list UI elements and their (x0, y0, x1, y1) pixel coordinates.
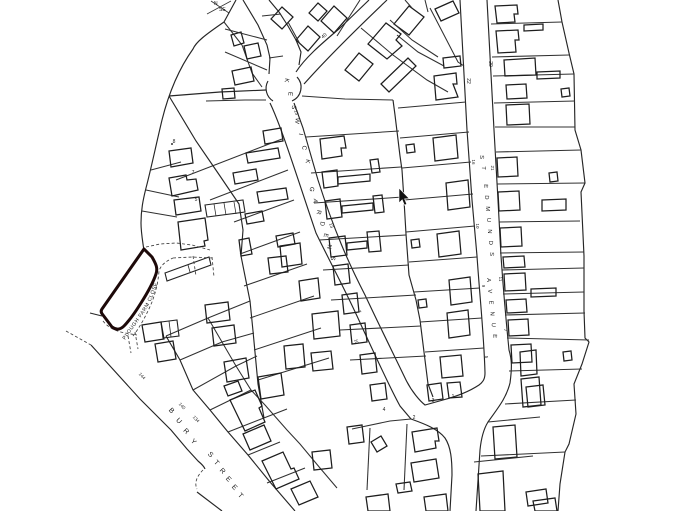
svg-text:D: D (483, 195, 489, 199)
svg-text:1: 1 (452, 394, 455, 400)
svg-text:5: 5 (195, 197, 198, 203)
svg-text:A: A (485, 278, 491, 282)
svg-text:29: 29 (487, 61, 493, 67)
svg-text:E: E (487, 300, 493, 304)
svg-text:S: S (478, 155, 484, 159)
svg-text:S: S (488, 252, 494, 256)
svg-text:N: N (486, 229, 492, 233)
svg-text:8: 8 (173, 139, 176, 145)
svg-text:21: 21 (490, 165, 495, 171)
svg-text:E: E (491, 334, 497, 338)
svg-text:3: 3 (432, 398, 435, 404)
svg-text:11: 11 (498, 277, 503, 282)
svg-text:4: 4 (383, 407, 386, 413)
svg-text:D: D (487, 241, 493, 245)
svg-text:SE: SE (219, 7, 226, 13)
svg-text:T: T (480, 166, 486, 170)
svg-text:2: 2 (413, 415, 416, 421)
svg-text:16: 16 (471, 159, 476, 165)
svg-text:N: N (489, 311, 495, 315)
svg-text:E: E (482, 184, 488, 188)
svg-text:7: 7 (192, 170, 195, 176)
svg-text:V: V (486, 289, 492, 293)
svg-text:U: U (485, 218, 491, 222)
svg-text:22: 22 (465, 78, 471, 84)
svg-text:N: N (214, 1, 218, 7)
svg-text:10: 10 (475, 223, 480, 229)
svg-text:U: U (490, 323, 496, 327)
svg-text:M: M (484, 206, 490, 211)
